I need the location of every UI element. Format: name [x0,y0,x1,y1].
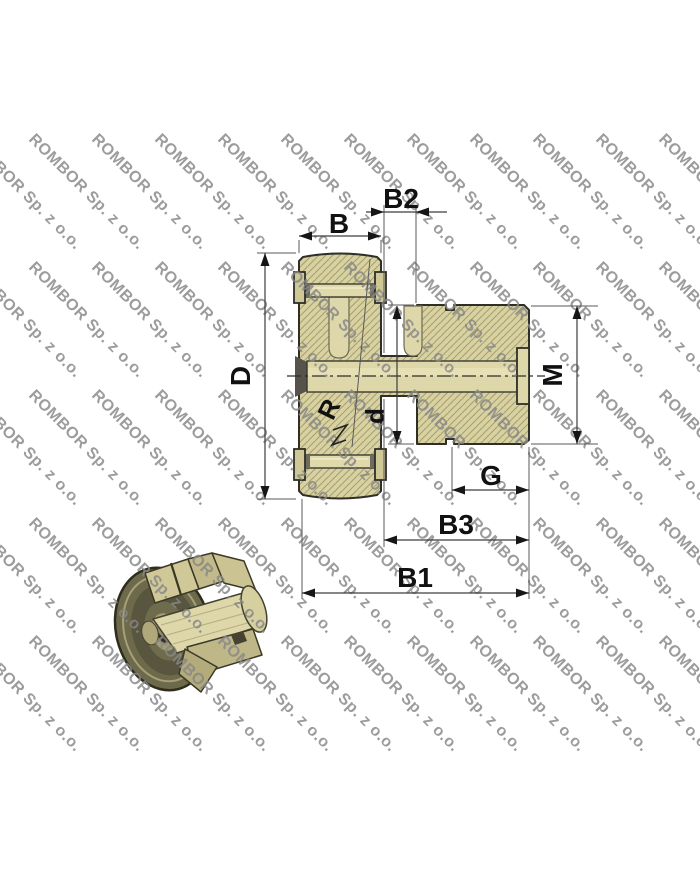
dimension-b-label: B [329,208,349,239]
bore-highlight [308,368,516,376]
watermark-text: ROMBOR Sp. z o.o. [529,259,651,381]
watermark-text: ROMBOR Sp. z o.o. [466,633,588,755]
watermark-text: ROMBOR Sp. z o.o. [340,633,462,755]
watermark-text: ROMBOR Sp. z o.o. [466,515,588,637]
technical-drawing-canvas: ROMBOR Sp. z o.o.ROMBOR Sp. z o.o.ROMBOR… [0,0,700,869]
watermark-text: ROMBOR Sp. z o.o. [25,515,147,637]
watermark-text: ROMBOR Sp. z o.o. [25,387,147,509]
drawing-page: ROMBOR Sp. z o.o.ROMBOR Sp. z o.o.ROMBOR… [0,0,700,869]
dimension-d-inner-label: d [360,408,390,424]
dimension-b3-label: B3 [438,509,474,540]
dimension-thread-label: M [537,363,568,386]
watermark-text: ROMBOR Sp. z o.o. [466,131,588,253]
watermark-text: ROMBOR Sp. z o.o. [151,387,273,509]
watermark-text: ROMBOR Sp. z o.o. [529,131,651,253]
watermark-text: ROMBOR Sp. z o.o. [277,515,399,637]
watermark-text: ROMBOR Sp. z o.o. [403,131,525,253]
watermark-text: ROMBOR Sp. z o.o. [88,131,210,253]
watermark-text: ROMBOR Sp. z o.o. [88,259,210,381]
dimension-g-label: G [480,460,502,491]
watermark-text: ROMBOR Sp. z o.o. [529,633,651,755]
watermark-text: ROMBOR Sp. z o.o. [403,633,525,755]
watermark-text: ROMBOR Sp. z o.o. [529,515,651,637]
dimension-b2-label: B2 [383,183,419,214]
watermark-text: ROMBOR Sp. z o.o. [88,387,210,509]
watermark-text: ROMBOR Sp. z o.o. [214,131,336,253]
watermark-text: ROMBOR Sp. z o.o. [151,259,273,381]
watermark-text: ROMBOR Sp. z o.o. [214,633,336,755]
watermark-text: ROMBOR Sp. z o.o. [277,633,399,755]
watermark-text: ROMBOR Sp. z o.o. [529,387,651,509]
dimension-d-outer-label: D [225,366,256,386]
watermark-text: ROMBOR Sp. z o.o. [151,131,273,253]
watermark-text: ROMBOR Sp. z o.o. [25,259,147,381]
dimension-b1-label: B1 [397,562,433,593]
watermark-text: ROMBOR Sp. z o.o. [25,131,147,253]
